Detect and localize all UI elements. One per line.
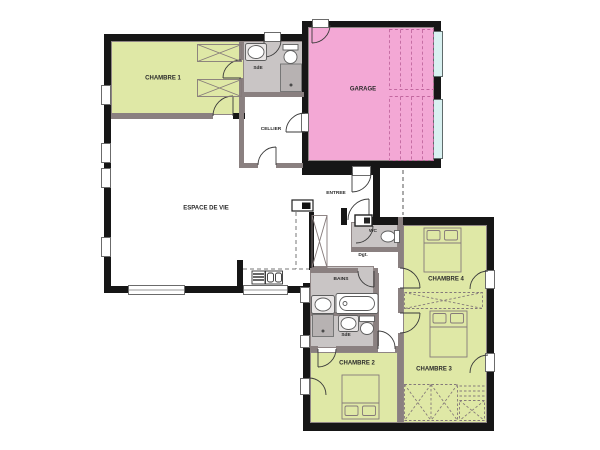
- wall-segment: [239, 163, 258, 168]
- kitchen-sink-icon: [266, 271, 283, 284]
- window: [300, 378, 310, 395]
- window: [101, 143, 111, 163]
- wall-segment: [398, 217, 403, 268]
- wall-segment: [434, 77, 441, 100]
- room-label-sde-1: SdE: [253, 65, 262, 70]
- wall-segment: [395, 346, 398, 352]
- wall-segment: [104, 286, 128, 293]
- exterior-door: [264, 32, 281, 42]
- closet-icon: [312, 216, 327, 268]
- wall-segment: [244, 92, 304, 97]
- kitchen-counter-dashed: [243, 212, 309, 269]
- wall-segment: [370, 217, 494, 225]
- room-label-cellier: CELLIER: [261, 126, 282, 131]
- room-label-garage: GARAGE: [350, 86, 376, 93]
- window: [485, 353, 495, 372]
- wall-segment: [374, 273, 379, 346]
- wall-segment: [302, 132, 308, 161]
- window: [101, 85, 111, 105]
- exterior-door: [312, 19, 329, 28]
- room-label-degagement: Dgt.: [358, 252, 367, 257]
- wall-segment: [336, 346, 378, 352]
- wall-segment: [373, 168, 380, 220]
- garage-door-opening: [433, 31, 443, 77]
- wall-segment: [302, 27, 308, 113]
- window: [101, 168, 111, 188]
- wall-segment: [310, 346, 318, 352]
- wall-segment: [309, 212, 314, 270]
- room-label-espace-de-vie: ESPACE DE VIE: [183, 205, 229, 212]
- fireplace-icon: [292, 200, 313, 211]
- front-door: [352, 166, 371, 176]
- room-label-chambre-1: CHAMBRE 1: [145, 75, 181, 82]
- room-label-chambre-4: CHAMBRE 4: [428, 276, 464, 283]
- wall-segment: [303, 348, 310, 378]
- room-sde-1: [243, 41, 304, 94]
- room-label-chambre-3: CHAMBRE 3: [416, 366, 452, 373]
- wall-segment: [276, 163, 303, 168]
- wall-segment: [398, 293, 403, 313]
- room-garage: [308, 27, 434, 161]
- wall-segment: [104, 34, 264, 41]
- wall-segment: [185, 286, 243, 293]
- wall-segment: [310, 312, 376, 316]
- wall-segment: [487, 288, 494, 354]
- room-wc: [351, 222, 398, 248]
- floor-plan: CHAMBRE 1 SdE CELLIER GARAGE ESPACE DE V…: [0, 0, 600, 450]
- wall-segment: [329, 21, 441, 27]
- window: [243, 285, 288, 295]
- wall-segment: [302, 168, 352, 175]
- wall-segment: [303, 303, 310, 335]
- window: [300, 335, 310, 348]
- wall-segment: [104, 41, 111, 85]
- room-chambre-4-3: [403, 225, 487, 423]
- wall-segment: [111, 113, 213, 119]
- room-label-entree: ENTREE: [326, 190, 345, 195]
- room-label-bains: BAINS: [334, 276, 349, 281]
- wall-segment: [302, 161, 441, 168]
- window: [128, 285, 185, 295]
- wall-segment: [310, 268, 358, 273]
- window: [485, 270, 495, 289]
- wall-segment: [398, 333, 403, 423]
- wall-segment: [351, 247, 400, 252]
- wall-segment: [303, 395, 310, 423]
- wall-segment: [487, 225, 494, 271]
- room-label-chambre-2: CHAMBRE 2: [339, 360, 375, 367]
- garage-door-opening: [433, 99, 443, 159]
- wall-segment: [104, 188, 111, 237]
- room-label-sde-2: SdE: [341, 332, 350, 337]
- wall-segment: [303, 423, 494, 431]
- wall-segment: [237, 260, 243, 286]
- wall-segment: [104, 105, 111, 143]
- window: [101, 237, 111, 257]
- wall-segment: [239, 41, 244, 60]
- wall-segment: [341, 208, 347, 225]
- wall-segment: [487, 372, 494, 423]
- room-label-wc: WC: [369, 228, 377, 233]
- stove-icon: [252, 271, 265, 284]
- window: [300, 287, 310, 303]
- interior-door-gap: [301, 113, 309, 132]
